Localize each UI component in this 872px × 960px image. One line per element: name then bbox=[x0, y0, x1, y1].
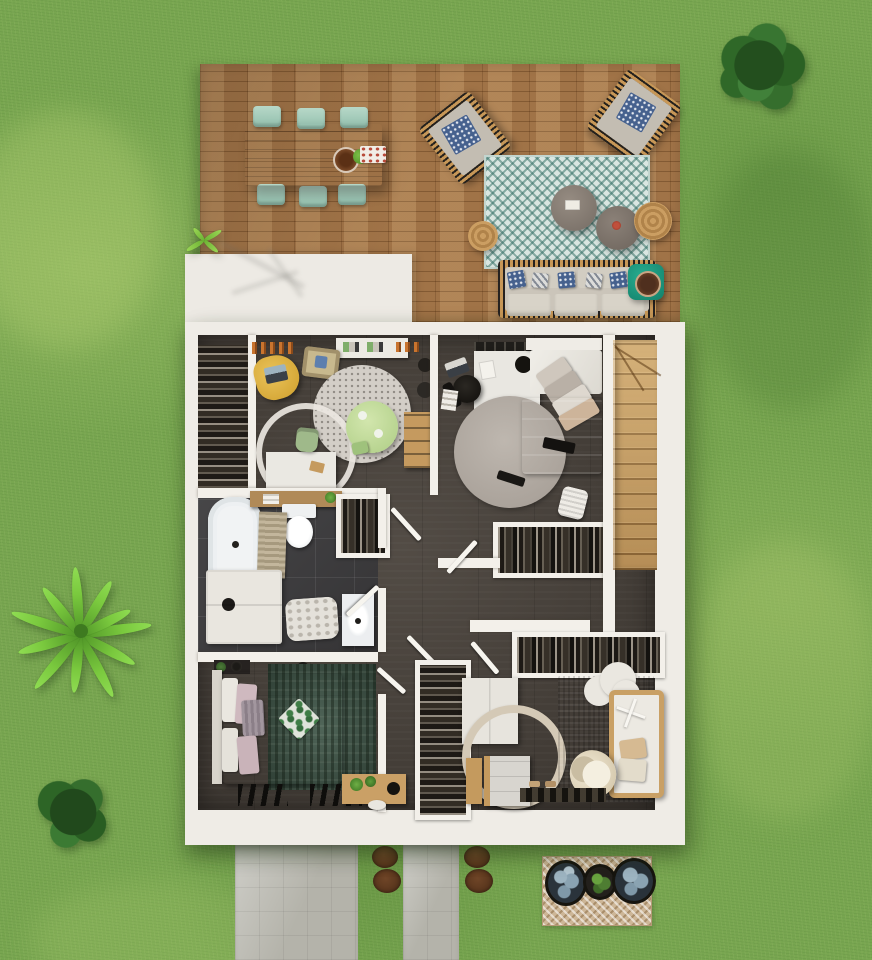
flat-roof-section bbox=[185, 254, 412, 324]
floor-plan-scene bbox=[0, 0, 872, 960]
walkway-wide bbox=[235, 845, 358, 960]
desk-black-bowl bbox=[387, 782, 400, 795]
plant-center bbox=[74, 624, 88, 638]
clothes-rail-orange bbox=[396, 342, 422, 352]
kids-desk bbox=[266, 452, 336, 488]
wooden-bowl bbox=[635, 271, 661, 297]
grass-patch bbox=[700, 150, 872, 410]
towel-stack bbox=[263, 494, 279, 504]
wall bbox=[378, 588, 386, 652]
bush-top-right bbox=[712, 18, 817, 123]
plate bbox=[374, 429, 383, 438]
fluffy-rug bbox=[285, 596, 340, 642]
tray-book bbox=[565, 200, 580, 210]
master-bed bbox=[212, 668, 344, 786]
desk-plant bbox=[365, 776, 376, 787]
bed-headboard bbox=[212, 670, 222, 784]
small-wood-shelf bbox=[466, 758, 482, 804]
shelf-plant bbox=[325, 492, 336, 503]
clothes-rail-orange bbox=[252, 342, 296, 354]
winder-step-line bbox=[614, 344, 644, 391]
vanity-cabinet bbox=[206, 570, 282, 644]
bush-bottom-left bbox=[30, 772, 120, 872]
wooden-crib bbox=[609, 690, 664, 798]
planting-circle bbox=[373, 869, 401, 893]
walkin-wardrobe-clothes bbox=[198, 345, 248, 495]
patterned-pillow bbox=[557, 271, 575, 288]
grass-tuft bbox=[186, 216, 224, 260]
dining-chair bbox=[338, 184, 366, 205]
wall bbox=[438, 558, 500, 568]
bed-headboard bbox=[526, 338, 602, 350]
potted-plant-blue bbox=[612, 858, 656, 904]
crib-pillow bbox=[617, 758, 647, 782]
tropical-plant bbox=[8, 552, 158, 717]
bed-pillow-white bbox=[222, 728, 238, 772]
play-mat-toy bbox=[314, 355, 327, 368]
food-tray bbox=[360, 146, 386, 163]
planting-circle bbox=[372, 846, 398, 868]
rattan-pouf bbox=[468, 221, 498, 251]
bed-pillow-knit bbox=[241, 699, 265, 736]
planting-circle bbox=[465, 869, 493, 893]
teal-side-table bbox=[628, 264, 664, 300]
grass-patch bbox=[0, 110, 160, 350]
wooden-bookshelf bbox=[404, 412, 430, 468]
wall bbox=[470, 620, 590, 632]
wooden-staircase bbox=[613, 340, 657, 570]
dining-chair bbox=[257, 184, 285, 205]
vanity-divider bbox=[206, 604, 282, 606]
winder-step-line bbox=[614, 346, 661, 376]
shoes bbox=[545, 781, 556, 787]
sofa-seat-cushion bbox=[554, 294, 598, 316]
patterned-pillow bbox=[609, 271, 628, 289]
bed-mauve-duvet bbox=[522, 398, 602, 474]
dining-chair bbox=[299, 186, 327, 207]
wall bbox=[248, 335, 256, 498]
planting-circle bbox=[464, 846, 490, 868]
flower-dish bbox=[612, 221, 621, 230]
bedroom-open-wardrobe bbox=[493, 522, 615, 578]
tuft-blade bbox=[202, 239, 219, 254]
ribbed-bath-mat bbox=[257, 512, 287, 579]
desk-papers bbox=[480, 361, 496, 379]
book-stack bbox=[441, 389, 459, 411]
black-folding-bench bbox=[238, 784, 288, 806]
tub-drain bbox=[232, 541, 239, 548]
grass-patch bbox=[690, 540, 872, 820]
plate bbox=[358, 411, 367, 420]
walkway-narrow bbox=[403, 845, 459, 960]
house-floor-plan bbox=[185, 322, 685, 845]
patterned-pillow bbox=[531, 272, 548, 289]
shoe-bench bbox=[520, 788, 606, 802]
kids-desk-chair bbox=[295, 427, 319, 453]
bed-pillow-pink bbox=[236, 735, 259, 775]
patterned-pillow bbox=[585, 272, 603, 289]
shoes bbox=[529, 781, 540, 787]
kids-shelf-items bbox=[343, 342, 383, 352]
rattan-pouf bbox=[634, 202, 672, 240]
toilet-bowl bbox=[285, 516, 313, 548]
sofa-seat-cushion bbox=[507, 294, 551, 316]
wall bbox=[430, 335, 438, 495]
desk-plant bbox=[350, 778, 363, 791]
tap bbox=[355, 618, 361, 624]
potted-plant-blue bbox=[545, 860, 587, 906]
patterned-pillow bbox=[507, 270, 527, 290]
white-stool bbox=[368, 800, 386, 810]
wall bbox=[378, 488, 386, 548]
